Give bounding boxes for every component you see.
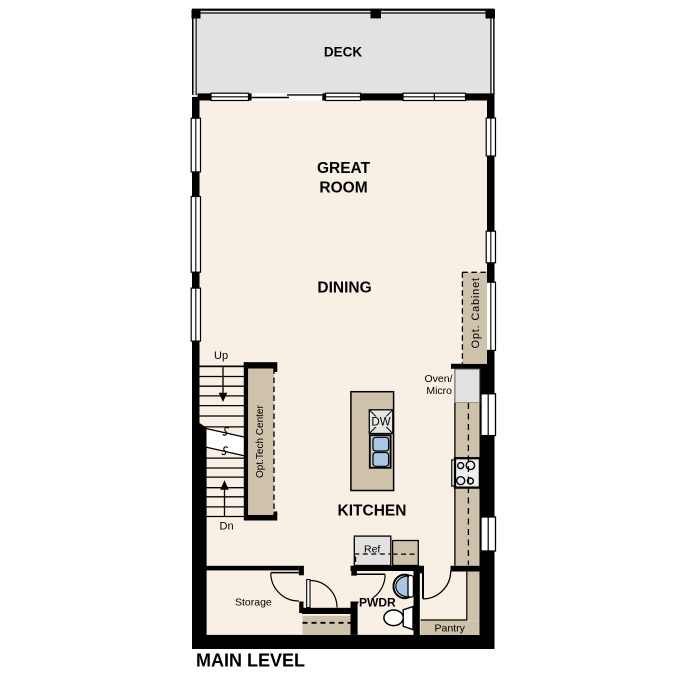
svg-text:MAIN LEVEL: MAIN LEVEL xyxy=(196,651,305,671)
svg-text:KITCHEN: KITCHEN xyxy=(338,503,407,520)
svg-text:Oven/: Oven/ xyxy=(424,373,452,385)
svg-text:Dn: Dn xyxy=(220,521,234,533)
svg-text:Micro: Micro xyxy=(426,385,452,397)
svg-text:ROOM: ROOM xyxy=(319,180,367,197)
svg-text:PWDR: PWDR xyxy=(359,595,396,609)
svg-text:DW: DW xyxy=(371,417,390,429)
svg-text:GREAT: GREAT xyxy=(317,160,371,177)
svg-text:Pantry: Pantry xyxy=(435,623,466,635)
svg-text:DECK: DECK xyxy=(324,45,363,60)
svg-text:Up: Up xyxy=(214,350,228,362)
svg-text:Opt.Tech Center: Opt.Tech Center xyxy=(255,405,266,478)
svg-text:DINING: DINING xyxy=(317,279,371,296)
svg-text:Ref: Ref xyxy=(364,544,380,556)
svg-text:Storage: Storage xyxy=(235,597,272,609)
svg-text:Opt. Cabinet: Opt. Cabinet xyxy=(470,277,482,348)
